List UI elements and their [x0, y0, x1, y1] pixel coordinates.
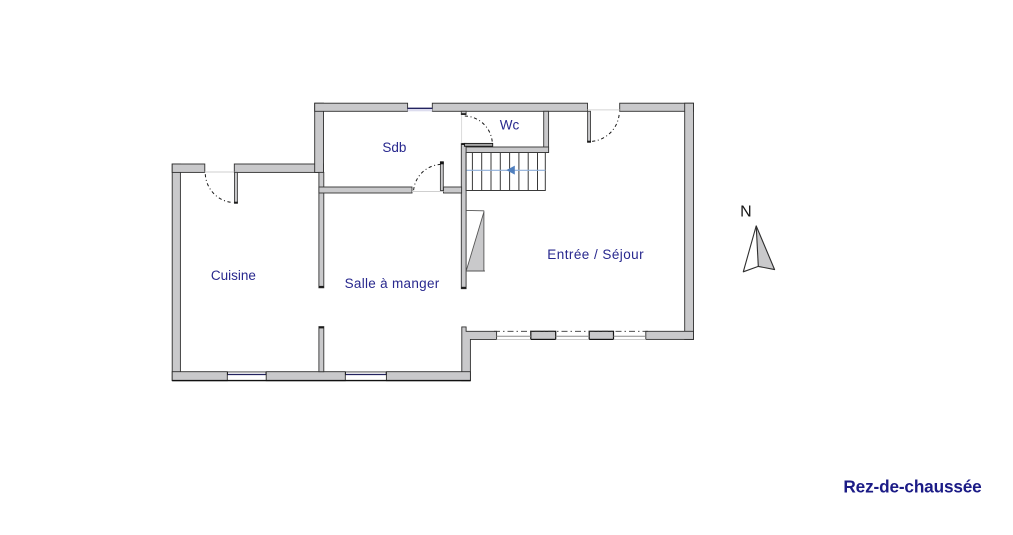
svg-text:Salle à manger: Salle à manger: [345, 276, 440, 291]
svg-text:N: N: [740, 204, 752, 221]
svg-text:Wc: Wc: [500, 117, 520, 132]
svg-text:Rez-de-chaussée: Rez-de-chaussée: [843, 476, 981, 496]
svg-text:Cuisine: Cuisine: [211, 268, 256, 283]
svg-text:Entrée / Séjour: Entrée / Séjour: [547, 247, 644, 262]
svg-text:Sdb: Sdb: [382, 140, 406, 155]
